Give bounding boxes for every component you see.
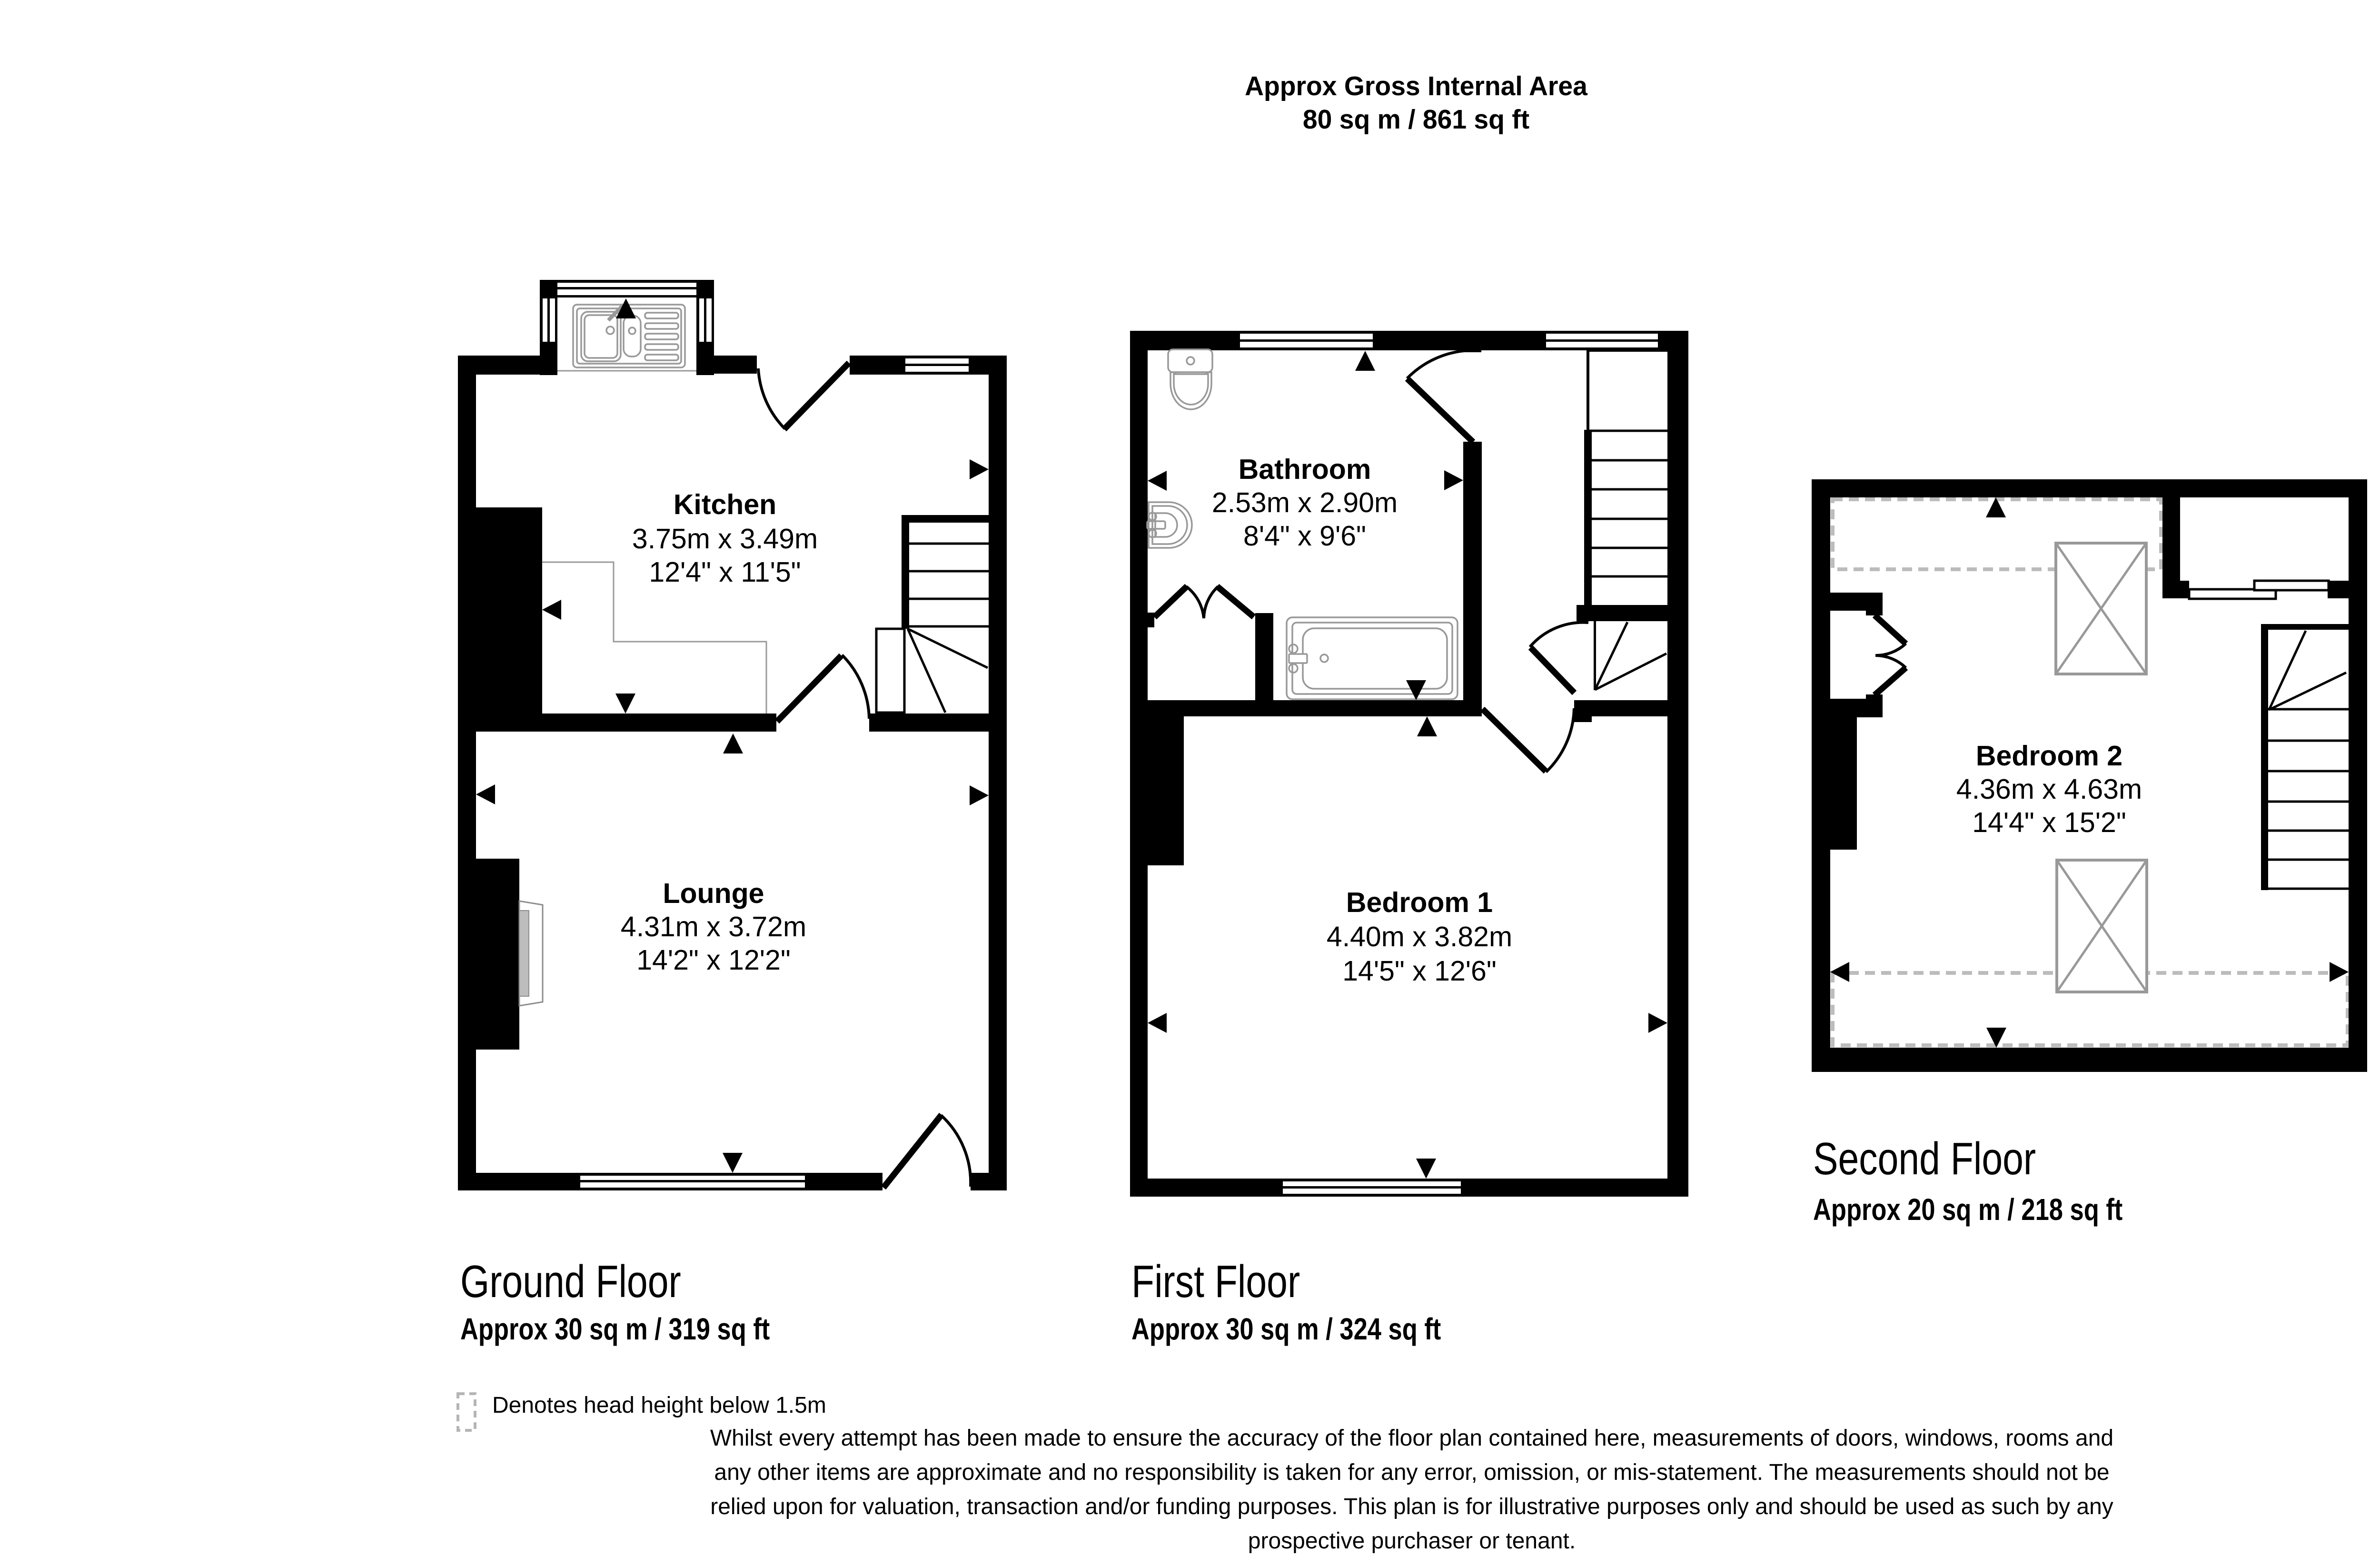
svg-text:Lounge: Lounge — [663, 878, 764, 909]
svg-text:Second Floor: Second Floor — [1813, 1133, 2036, 1184]
svg-text:Whilst every attempt has been: Whilst every attempt has been made to en… — [710, 1426, 2113, 1451]
svg-text:Ground Floor: Ground Floor — [460, 1256, 681, 1307]
svg-text:3.75m x 3.49m: 3.75m x 3.49m — [632, 523, 818, 555]
svg-text:2.53m x 2.90m: 2.53m x 2.90m — [1212, 487, 1398, 518]
svg-text:prospective purchaser or tenan: prospective purchaser or tenant. — [1248, 1528, 1576, 1554]
svg-text:Kitchen: Kitchen — [674, 489, 776, 520]
svg-text:Approx 20 sq m / 218 sq ft: Approx 20 sq m / 218 sq ft — [1813, 1193, 2122, 1227]
svg-text:Denotes head height below 1.5m: Denotes head height below 1.5m — [492, 1393, 826, 1418]
svg-text:80 sq m / 861 sq ft: 80 sq m / 861 sq ft — [1303, 104, 1530, 134]
svg-text:14'5" x 12'6": 14'5" x 12'6" — [1342, 955, 1497, 987]
svg-text:14'2" x 12'2": 14'2" x 12'2" — [636, 944, 791, 976]
svg-text:4.36m x 4.63m: 4.36m x 4.63m — [1956, 773, 2142, 805]
svg-text:Bedroom 2: Bedroom 2 — [1976, 740, 2122, 772]
svg-text:4.40m x 3.82m: 4.40m x 3.82m — [1327, 921, 1512, 952]
svg-text:4.31m x 3.72m: 4.31m x 3.72m — [621, 911, 806, 942]
svg-text:Approx 30 sq m / 324 sq ft: Approx 30 sq m / 324 sq ft — [1131, 1312, 1441, 1346]
svg-text:First Floor: First Floor — [1131, 1256, 1300, 1307]
svg-text:any other items are approximat: any other items are approximate and no r… — [714, 1460, 2109, 1485]
svg-text:Approx 30 sq m / 319 sq ft: Approx 30 sq m / 319 sq ft — [460, 1312, 770, 1346]
svg-text:12'4" x 11'5": 12'4" x 11'5" — [649, 556, 801, 588]
svg-text:Bedroom 1: Bedroom 1 — [1346, 887, 1493, 918]
svg-text:relied upon for valuation, tra: relied upon for valuation, transaction a… — [710, 1494, 2113, 1519]
svg-text:Approx Gross Internal Area: Approx Gross Internal Area — [1245, 70, 1588, 101]
svg-text:Bathroom: Bathroom — [1239, 454, 1371, 485]
svg-text:14'4" x 15'2": 14'4" x 15'2" — [1972, 807, 2126, 838]
svg-text:8'4" x 9'6": 8'4" x 9'6" — [1243, 520, 1366, 552]
